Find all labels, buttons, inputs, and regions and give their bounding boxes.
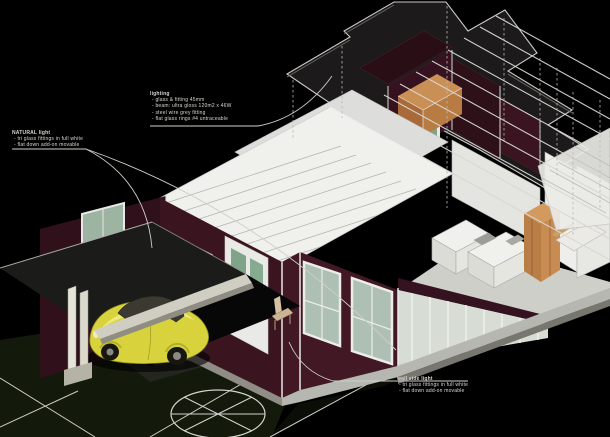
roof-annotation-line: - beam: ultra gloss 120m2 x 46W: [150, 103, 232, 109]
car-hubcap: [107, 349, 114, 356]
window-front-a: [304, 262, 340, 346]
roof-annotation-line: - flat glass rings #4 untraceable: [150, 116, 232, 122]
scene-svg: [0, 0, 610, 437]
window-front-b: [352, 278, 392, 364]
left-annotation: NATURAL light - tri glass fittings in fu…: [12, 130, 83, 149]
roof-annotation: lighting - glass & fitting 45mm - beam: …: [150, 91, 232, 122]
wall-annotation: wall side light - tri glass fittings in …: [397, 376, 468, 395]
rendering-canvas: lighting - glass & fitting 45mm - beam: …: [0, 0, 610, 437]
left-annotation-line: - flat down add-on movable: [12, 142, 83, 148]
wall-annotation-line: - flat down add-on movable: [397, 388, 468, 394]
car-hubcap: [173, 352, 181, 360]
